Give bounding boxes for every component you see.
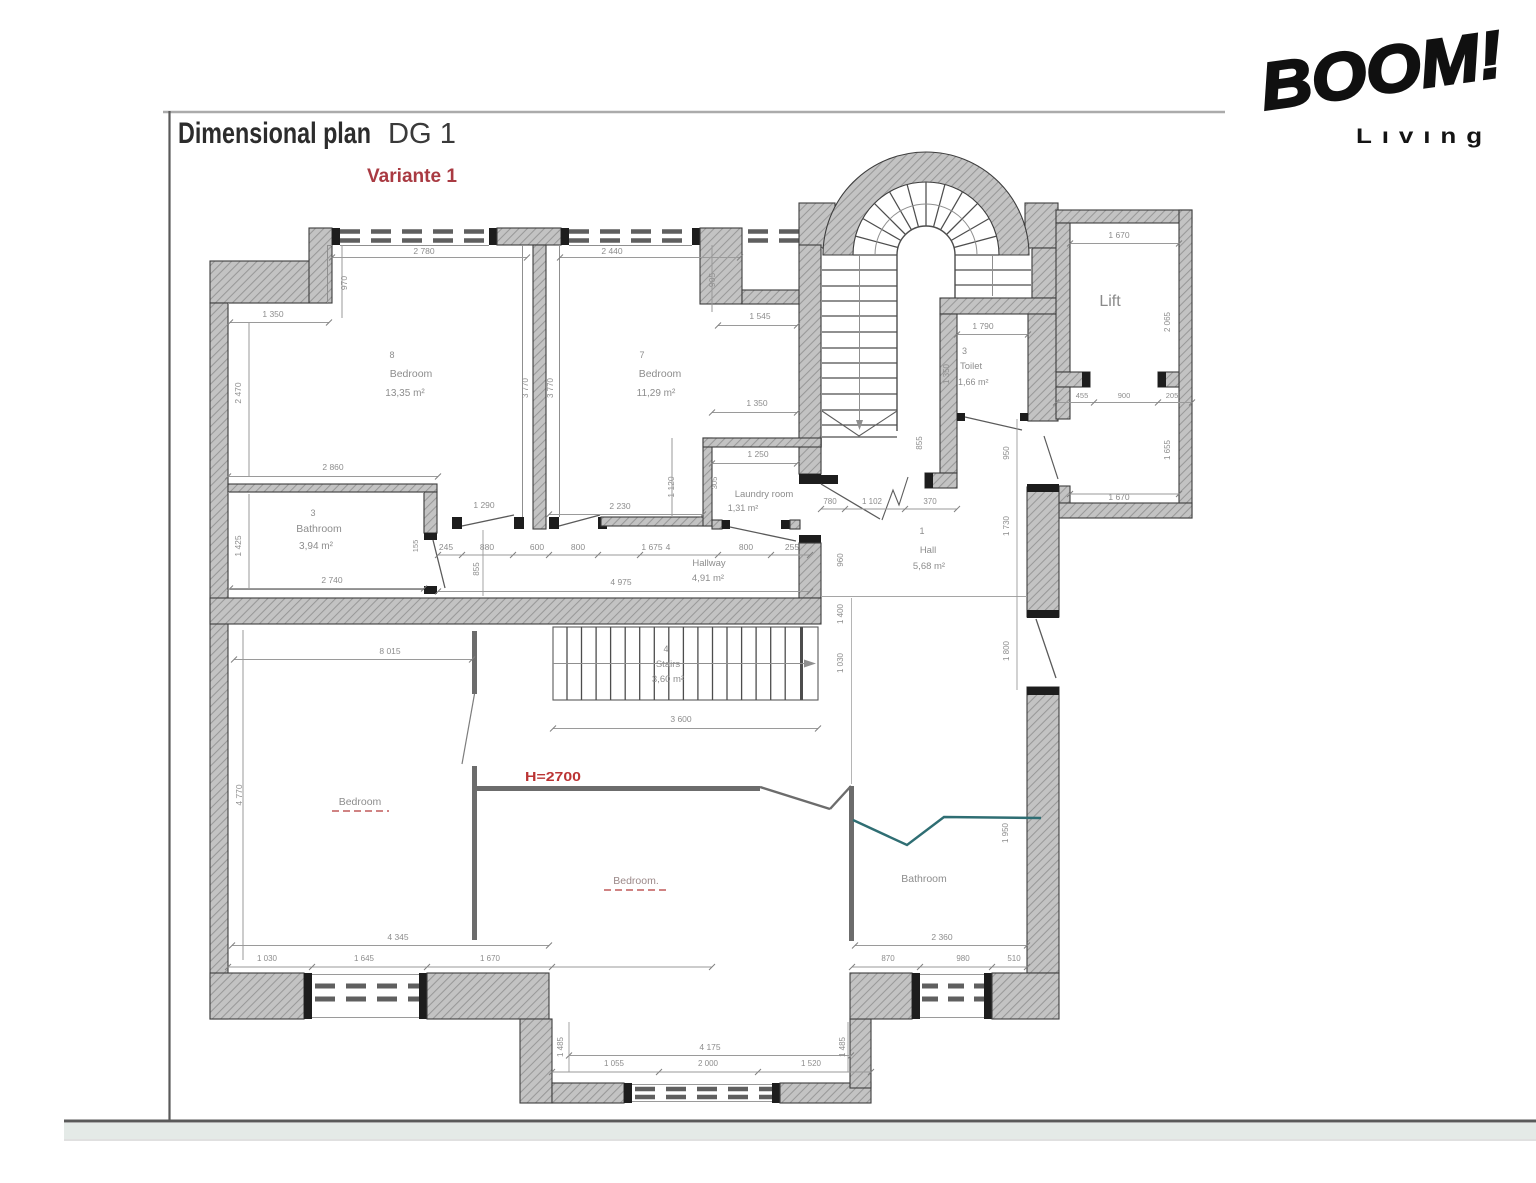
svg-text:4 975: 4 975 [610, 577, 632, 587]
svg-text:H=2700: H=2700 [525, 769, 581, 784]
svg-text:1 675: 1 675 [641, 542, 663, 552]
svg-text:305: 305 [710, 477, 719, 490]
svg-text:3 600: 3 600 [670, 714, 692, 724]
svg-text:600: 600 [530, 542, 544, 552]
svg-text:1 030: 1 030 [257, 954, 278, 963]
svg-text:510: 510 [1007, 954, 1021, 963]
svg-text:3 770: 3 770 [521, 377, 530, 398]
svg-text:3: 3 [962, 346, 967, 356]
svg-text:4: 4 [666, 542, 671, 552]
svg-text:1 485: 1 485 [838, 1036, 847, 1057]
svg-text:370: 370 [923, 497, 937, 506]
svg-text:Bedroom: Bedroom [639, 368, 682, 380]
svg-text:870: 870 [881, 954, 895, 963]
svg-text:Bathroom: Bathroom [296, 523, 342, 535]
svg-text:855: 855 [915, 436, 924, 450]
svg-text:880: 880 [480, 542, 494, 552]
svg-text:155: 155 [411, 540, 420, 553]
svg-text:4: 4 [663, 644, 668, 654]
svg-text:1 290: 1 290 [473, 500, 495, 510]
svg-text:205: 205 [1166, 391, 1179, 400]
svg-text:Variante 1: Variante 1 [367, 166, 457, 187]
svg-text:1 645: 1 645 [354, 954, 375, 963]
svg-text:255: 255 [785, 542, 799, 552]
svg-text:1 730: 1 730 [1002, 515, 1011, 536]
svg-text:3: 3 [310, 508, 315, 518]
svg-text:Hallway: Hallway [692, 558, 726, 569]
svg-text:900: 900 [1118, 391, 1131, 400]
svg-text:Toilet: Toilet [960, 361, 983, 372]
svg-text:1 102: 1 102 [862, 497, 883, 506]
svg-text:Stairs: Stairs [656, 659, 681, 670]
svg-text:1 655: 1 655 [1163, 439, 1172, 460]
svg-text:960: 960 [836, 553, 845, 567]
svg-text:1 250: 1 250 [747, 449, 769, 459]
svg-text:5,68 m²: 5,68 m² [913, 561, 945, 572]
svg-text:970: 970 [339, 276, 349, 290]
svg-text:855: 855 [472, 562, 481, 576]
svg-text:1 350: 1 350 [942, 363, 951, 384]
svg-text:2 780: 2 780 [413, 246, 435, 256]
svg-text:Lıvıng: Lıvıng [1356, 125, 1492, 148]
svg-text:800: 800 [739, 542, 753, 552]
svg-text:Dimensional plan: Dimensional plan [178, 117, 371, 150]
svg-text:3,60 m²: 3,60 m² [652, 674, 684, 685]
svg-text:4 345: 4 345 [387, 932, 409, 942]
svg-text:1 950: 1 950 [1001, 822, 1010, 843]
svg-text:4,91 m²: 4,91 m² [692, 573, 724, 584]
svg-text:4 175: 4 175 [699, 1042, 721, 1052]
svg-text:DG 1: DG 1 [388, 118, 456, 150]
svg-text:1 425: 1 425 [233, 535, 243, 557]
svg-text:1,66 m²: 1,66 m² [958, 377, 989, 387]
svg-text:780: 780 [823, 497, 837, 506]
svg-text:2 440: 2 440 [601, 246, 623, 256]
svg-text:1 030: 1 030 [836, 652, 845, 673]
svg-text:2 000: 2 000 [698, 1059, 719, 1068]
svg-text:7: 7 [639, 350, 644, 360]
svg-text:8: 8 [389, 350, 394, 360]
svg-text:2 470: 2 470 [233, 382, 243, 404]
svg-text:1 790: 1 790 [972, 321, 994, 331]
svg-text:13,35 m²: 13,35 m² [385, 388, 425, 399]
svg-text:2 230: 2 230 [609, 501, 631, 511]
svg-text:1 800: 1 800 [1002, 640, 1011, 661]
svg-text:Bathroom: Bathroom [901, 873, 947, 885]
svg-text:1 670: 1 670 [1108, 230, 1130, 240]
svg-text:455: 455 [1076, 391, 1089, 400]
svg-text:1 055: 1 055 [604, 1059, 625, 1068]
svg-text:11,29 m²: 11,29 m² [637, 388, 676, 399]
svg-text:245: 245 [439, 542, 453, 552]
svg-text:2 360: 2 360 [931, 932, 953, 942]
svg-text:3,94 m²: 3,94 m² [299, 541, 334, 552]
svg-text:2 860: 2 860 [322, 462, 344, 472]
svg-text:Hall: Hall [920, 545, 936, 556]
svg-text:1 350: 1 350 [262, 309, 284, 319]
svg-text:800: 800 [571, 542, 585, 552]
svg-text:1 545: 1 545 [749, 311, 771, 321]
svg-text:Bedroom: Bedroom [390, 368, 433, 380]
svg-text:Bedroom: Bedroom [339, 796, 382, 808]
svg-text:Laundry room: Laundry room [735, 489, 794, 500]
svg-text:8 015: 8 015 [379, 646, 401, 656]
svg-text:Bedroom.: Bedroom. [613, 875, 659, 887]
svg-text:980: 980 [956, 954, 970, 963]
svg-text:1 120: 1 120 [666, 476, 676, 498]
svg-text:3 770: 3 770 [546, 377, 555, 398]
svg-text:1 485: 1 485 [556, 1036, 565, 1057]
svg-text:Lift: Lift [1099, 293, 1121, 310]
svg-text:1 400: 1 400 [836, 603, 845, 624]
svg-text:2 740: 2 740 [321, 575, 343, 585]
svg-text:1,31 m²: 1,31 m² [728, 503, 759, 513]
svg-text:1: 1 [919, 526, 924, 536]
svg-text:1 520: 1 520 [801, 1059, 822, 1068]
svg-text:2 065: 2 065 [1163, 311, 1172, 332]
svg-text:1 350: 1 350 [746, 398, 768, 408]
svg-text:950: 950 [1002, 446, 1011, 460]
svg-text:1 670: 1 670 [480, 954, 501, 963]
